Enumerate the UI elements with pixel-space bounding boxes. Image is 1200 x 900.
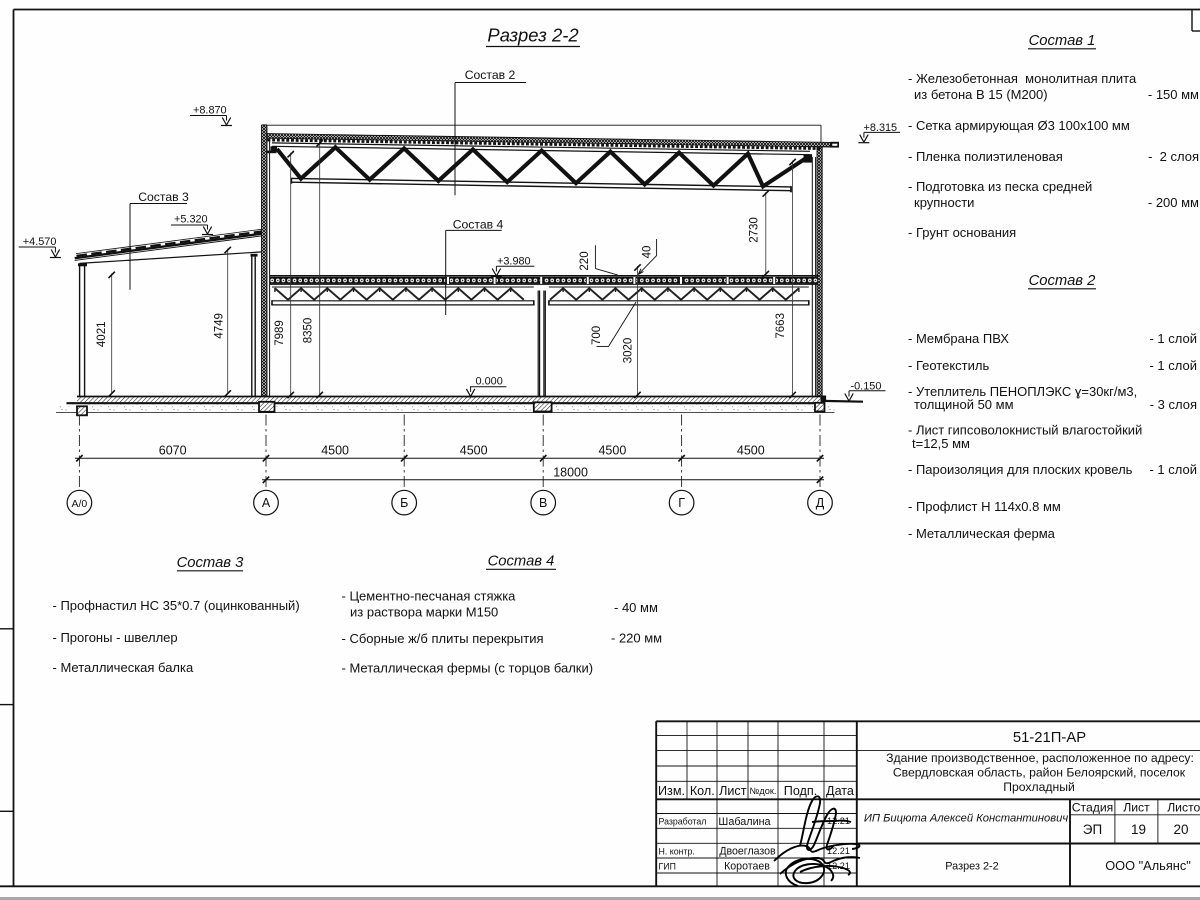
svg-text:ООО "Альянс": ООО "Альянс"	[1105, 858, 1191, 873]
svg-text:Н. контр.: Н. контр.	[659, 846, 695, 856]
svg-text:0.000: 0.000	[476, 375, 503, 387]
svg-text:Прохладный: Прохладный	[1003, 780, 1075, 794]
svg-text:7989: 7989	[274, 320, 286, 346]
svg-text:№док.: №док.	[750, 786, 777, 796]
svg-text:- Пароизоляция для плоских кро: - Пароизоляция для плоских кровель	[908, 462, 1133, 477]
svg-text:Д: Д	[816, 496, 825, 510]
svg-text:4500: 4500	[737, 444, 765, 458]
svg-text:из бетона В 15 (М200): из бетона В 15 (М200)	[914, 87, 1048, 102]
svg-text:- Металлическая фермы (с торцо: - Металлическая фермы (с торцов балки)	[342, 661, 594, 676]
svg-text:- 220 мм: - 220 мм	[611, 631, 662, 646]
svg-text:4500: 4500	[321, 444, 349, 458]
svg-text:Свердловская область, район Бе: Свердловская область, район Белоярский, …	[893, 766, 1186, 780]
svg-text:Двоеглазов: Двоеглазов	[719, 846, 776, 858]
svg-text:- Цементно-песчаная стяжка: - Цементно-песчаная стяжка	[342, 589, 517, 604]
svg-text:- Металлическая балка: - Металлическая балка	[53, 660, 194, 675]
svg-text:+5.320: +5.320	[174, 214, 208, 226]
svg-text:Изм.: Изм.	[658, 784, 685, 798]
svg-text:Листов: Листов	[1167, 801, 1200, 815]
svg-text:51-21П-АР: 51-21П-АР	[1013, 730, 1086, 746]
svg-text:- Сетка армирующая Ø3 100х100: - Сетка армирующая Ø3 100х100 мм	[908, 118, 1130, 133]
svg-text:+8.870: +8.870	[193, 105, 227, 117]
svg-text:Состав 2: Состав 2	[1029, 273, 1097, 289]
svg-text:t=12,5 мм: t=12,5 мм	[912, 436, 970, 451]
svg-text:толщиной 50 мм: толщиной 50 мм	[914, 397, 1014, 412]
svg-text:7663: 7663	[775, 313, 787, 339]
svg-text:- 2 слоя: - 2 слоя	[1148, 149, 1199, 164]
svg-text:- Сборные ж/б плиты перекрытия: - Сборные ж/б плиты перекрытия	[342, 631, 544, 646]
svg-text:220: 220	[579, 251, 591, 270]
svg-text:Состав 2: Состав 2	[465, 68, 516, 82]
svg-text:ЭП: ЭП	[1083, 822, 1102, 837]
svg-text:из раствора марки М150: из раствора марки М150	[350, 605, 498, 620]
svg-text:Разработал: Разработал	[659, 816, 707, 826]
svg-text:- Подготовка из песка средней: - Подготовка из песка средней	[908, 179, 1092, 194]
svg-text:40: 40	[642, 246, 654, 259]
svg-text:Шабалина: Шабалина	[718, 816, 770, 828]
svg-text:Кол.: Кол.	[690, 784, 715, 798]
svg-text:19: 19	[1131, 822, 1146, 837]
svg-text:Коротаев: Коротаев	[724, 861, 770, 873]
svg-text:- 40 мм: - 40 мм	[614, 600, 658, 615]
svg-text:- Геотекстиль: - Геотекстиль	[908, 358, 989, 373]
svg-text:- Мембрана ПВХ: - Мембрана ПВХ	[908, 331, 1009, 346]
svg-text:Состав 4: Состав 4	[453, 217, 504, 231]
svg-text:Разрез 2-2: Разрез 2-2	[487, 25, 578, 46]
svg-text:Лист: Лист	[1123, 801, 1150, 815]
svg-text:Состав 4: Состав 4	[488, 554, 555, 570]
svg-text:Состав 3: Состав 3	[177, 555, 245, 571]
svg-text:- 150 мм: - 150 мм	[1148, 87, 1199, 102]
svg-text:Лист: Лист	[719, 784, 747, 798]
svg-text:- Металлическая ферма: - Металлическая ферма	[908, 526, 1056, 541]
svg-text:- Профнастил НС 35*0.7 (оцинко: - Профнастил НС 35*0.7 (оцинкованный)	[53, 598, 300, 613]
svg-text:4749: 4749	[213, 313, 225, 339]
svg-text:2730: 2730	[749, 217, 761, 243]
svg-text:20: 20	[1173, 822, 1188, 837]
svg-text:6070: 6070	[159, 444, 187, 458]
svg-text:8350: 8350	[302, 318, 314, 344]
svg-text:- 1 слой: - 1 слой	[1149, 331, 1197, 346]
svg-text:18000: 18000	[553, 465, 588, 479]
svg-text:крупности: крупности	[914, 195, 974, 210]
svg-text:Здание производственное, распо: Здание производственное, расположенное п…	[886, 751, 1194, 765]
svg-text:Состав 1: Состав 1	[1029, 33, 1096, 49]
svg-text:3020: 3020	[622, 338, 634, 364]
svg-text:- 1 слой: - 1 слой	[1149, 358, 1197, 373]
svg-text:ИП Бицюта Алексей Константинов: ИП Бицюта Алексей Константинович	[864, 812, 1068, 824]
svg-text:Подп.: Подп.	[784, 784, 817, 798]
svg-text:А: А	[262, 496, 271, 510]
svg-text:Разрез 2-2: Разрез 2-2	[945, 861, 998, 873]
svg-text:ГИП: ГИП	[659, 861, 676, 871]
svg-text:4021: 4021	[96, 322, 108, 348]
svg-text:- Прогоны - швеллер: - Прогоны - швеллер	[53, 630, 178, 645]
svg-text:Дата: Дата	[826, 784, 854, 798]
svg-text:Б: Б	[400, 496, 408, 510]
svg-text:- 3 слоя: - 3 слоя	[1150, 397, 1197, 412]
svg-text:- 1 слой: - 1 слой	[1149, 462, 1197, 477]
svg-text:- Профлист Н 114х0.8 мм: - Профлист Н 114х0.8 мм	[908, 499, 1061, 514]
svg-text:700: 700	[591, 326, 603, 345]
svg-text:- Грунт основания: - Грунт основания	[908, 225, 1016, 240]
svg-text:Стадия: Стадия	[1072, 801, 1114, 815]
svg-text:Состав 3: Состав 3	[138, 190, 189, 204]
svg-text:В: В	[539, 496, 547, 510]
svg-text:4500: 4500	[460, 444, 488, 458]
svg-text:Г: Г	[678, 496, 685, 510]
svg-text:А/0: А/0	[72, 498, 88, 510]
svg-text:- Пленка полиэтиленовая: - Пленка полиэтиленовая	[908, 149, 1063, 164]
svg-text:+4.570: +4.570	[23, 236, 57, 248]
svg-text:4500: 4500	[598, 444, 626, 458]
svg-text:- Железобетонная монолитная п: - Железобетонная монолитная плита	[908, 71, 1137, 86]
svg-text:- 200 мм: - 200 мм	[1148, 195, 1199, 210]
